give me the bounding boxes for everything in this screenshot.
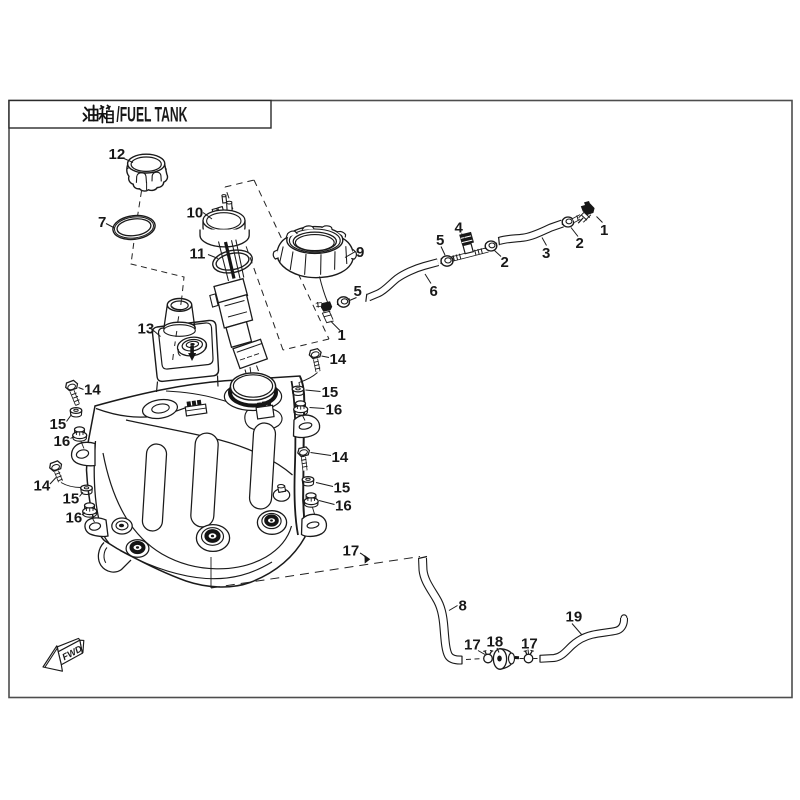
svg-text:3: 3: [542, 245, 550, 262]
svg-text:13: 13: [138, 321, 155, 338]
svg-text:16: 16: [54, 433, 71, 450]
svg-text:7: 7: [98, 214, 106, 231]
svg-text:14: 14: [34, 478, 51, 495]
svg-text:2: 2: [501, 254, 509, 271]
svg-text:14: 14: [330, 351, 347, 368]
svg-text:5: 5: [354, 283, 362, 300]
svg-text:16: 16: [335, 498, 352, 515]
svg-text:16: 16: [66, 510, 83, 527]
svg-text:19: 19: [566, 609, 583, 626]
svg-text:15: 15: [322, 384, 339, 401]
svg-text:/FUEL TANK: /FUEL TANK: [116, 102, 187, 127]
svg-text:6: 6: [430, 283, 438, 300]
svg-text:15: 15: [63, 491, 80, 508]
svg-text:15: 15: [334, 480, 351, 497]
svg-text:8: 8: [459, 598, 467, 615]
svg-text:12: 12: [109, 146, 126, 163]
svg-text:14: 14: [332, 449, 349, 466]
svg-text:17: 17: [521, 636, 538, 653]
svg-text:1: 1: [600, 222, 608, 239]
svg-text:17: 17: [343, 543, 360, 560]
svg-text:9: 9: [356, 244, 364, 261]
svg-text:15: 15: [50, 416, 67, 433]
svg-text:5: 5: [436, 232, 444, 249]
svg-text:10: 10: [187, 205, 204, 222]
svg-text:11: 11: [190, 246, 206, 263]
svg-text:2: 2: [576, 235, 584, 252]
svg-text:14: 14: [84, 382, 101, 399]
svg-text:16: 16: [326, 402, 343, 419]
svg-text:18: 18: [487, 634, 504, 651]
